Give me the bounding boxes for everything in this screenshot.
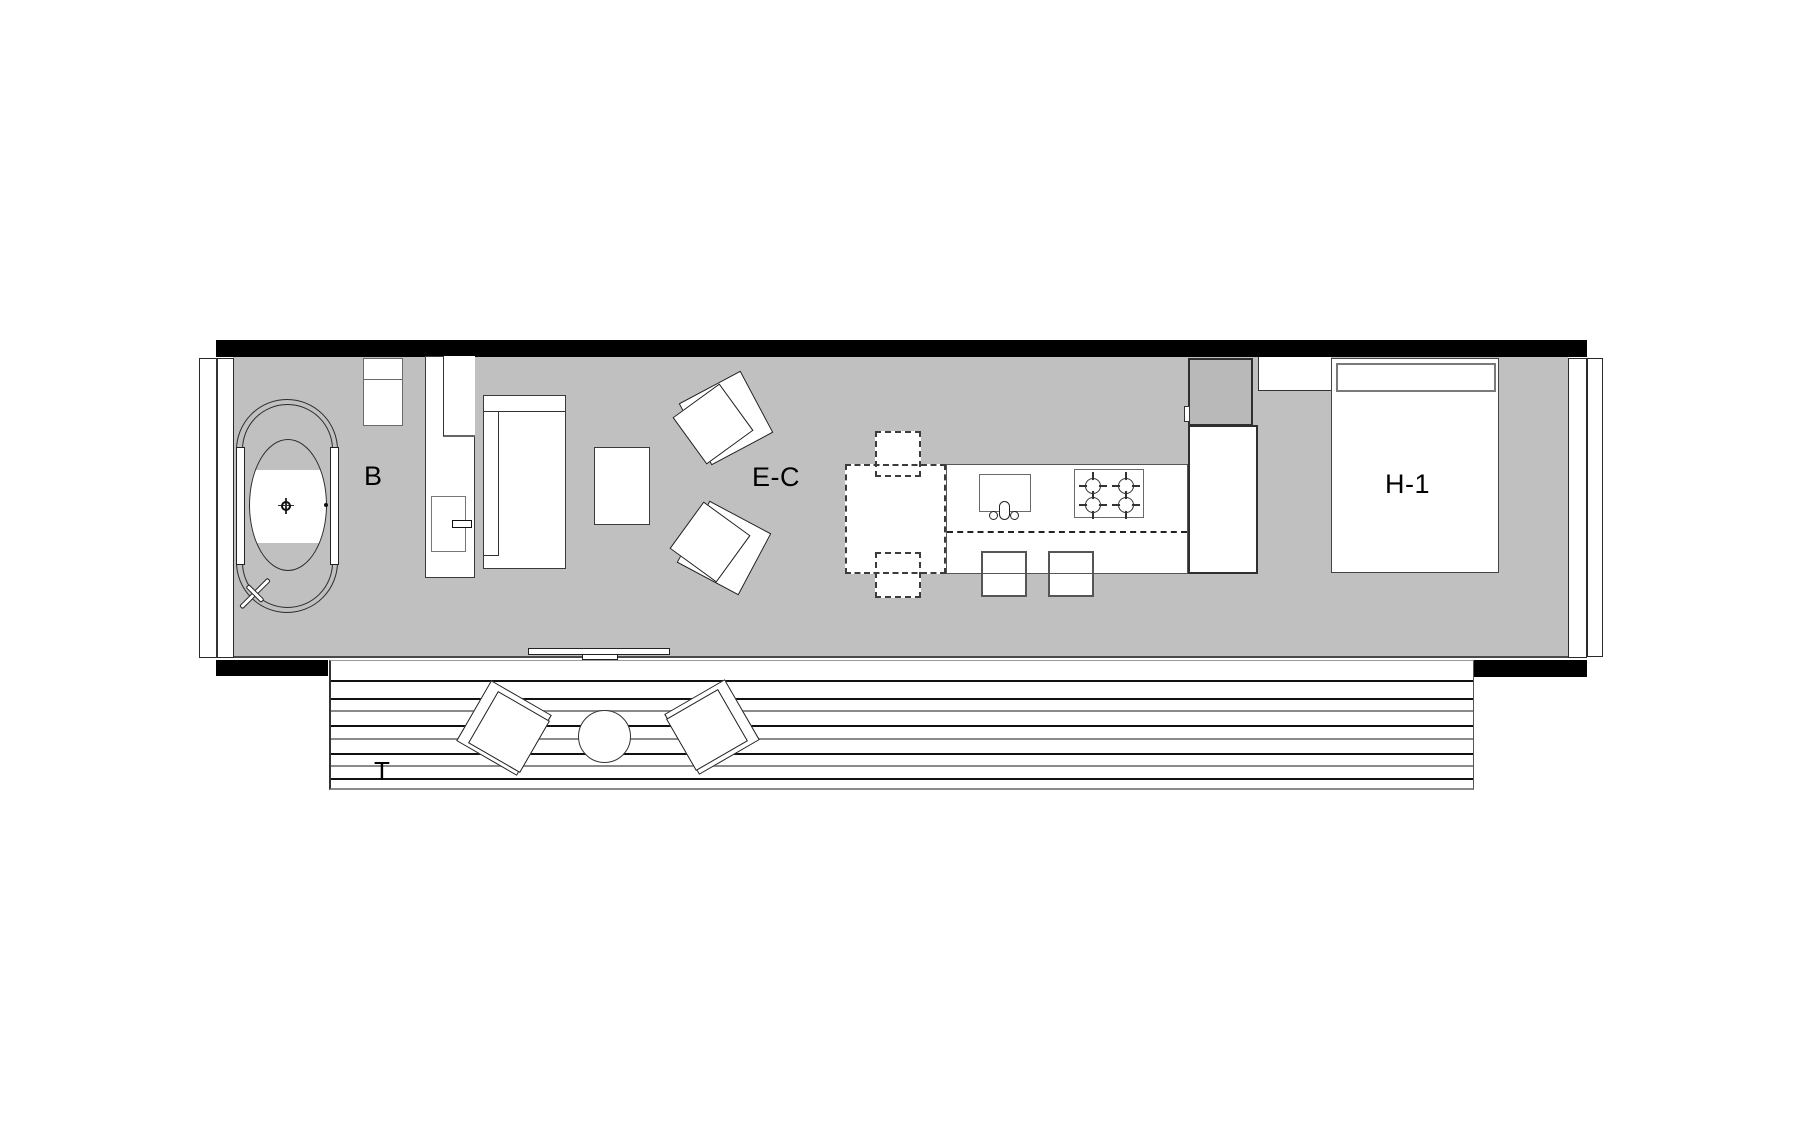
faucet-spout bbox=[999, 501, 1010, 520]
door-threshold-tab bbox=[582, 654, 618, 660]
island-stool-right bbox=[1048, 551, 1094, 597]
fridge-cabinet bbox=[1188, 425, 1258, 574]
cooktop bbox=[1074, 469, 1144, 518]
window-left-mullion bbox=[216, 358, 218, 658]
wall-top bbox=[216, 340, 1587, 357]
island-stool-left bbox=[981, 551, 1027, 597]
bed-pillow bbox=[1336, 363, 1496, 392]
deck-board-line bbox=[331, 778, 1473, 780]
deck-board-line bbox=[331, 680, 1473, 682]
bed bbox=[1331, 358, 1499, 573]
bath-cabinet-divider bbox=[364, 379, 402, 380]
sofa bbox=[483, 395, 566, 569]
sofa-backrest-line bbox=[484, 411, 565, 412]
tall-unit-gray bbox=[1188, 358, 1253, 426]
wardrobe bbox=[425, 356, 475, 578]
wall-bottom-right bbox=[1474, 660, 1587, 677]
drain-icon bbox=[281, 501, 291, 511]
coffee-table bbox=[594, 447, 650, 525]
burner-icon bbox=[1077, 489, 1109, 521]
room-label-terrace: T bbox=[374, 756, 390, 787]
tall-unit-latch bbox=[1184, 406, 1190, 422]
island-overhang-dashed-line bbox=[947, 531, 1187, 533]
bathtub-side-panel-right bbox=[330, 447, 339, 565]
room-label-bathroom: B bbox=[364, 461, 383, 492]
wall-bottom-left bbox=[216, 660, 328, 676]
dining-table bbox=[845, 464, 946, 574]
window-right-inner bbox=[1568, 358, 1587, 658]
room-label-bedroom: H-1 bbox=[1385, 469, 1430, 500]
floor-plan-canvas: B E-C bbox=[0, 0, 1800, 1122]
wardrobe-upper-section bbox=[443, 356, 475, 437]
sofa-armrest-end bbox=[484, 555, 498, 556]
deck-round-table bbox=[578, 710, 631, 763]
tub-overflow-dot bbox=[324, 503, 328, 507]
wardrobe-handle bbox=[452, 520, 472, 528]
bathtub-side-panel-left bbox=[236, 447, 245, 565]
faucet-knob-right bbox=[1010, 511, 1019, 520]
window-right-outer bbox=[1587, 358, 1603, 657]
room-label-living-dining: E-C bbox=[752, 462, 800, 493]
sofa-armrest-line bbox=[498, 411, 499, 556]
island-front-edge bbox=[946, 573, 1188, 574]
burner-icon bbox=[1110, 489, 1142, 521]
bath-cabinet bbox=[363, 358, 403, 426]
faucet-knob-left bbox=[989, 511, 998, 520]
bedroom-closet-strip bbox=[1258, 357, 1331, 391]
